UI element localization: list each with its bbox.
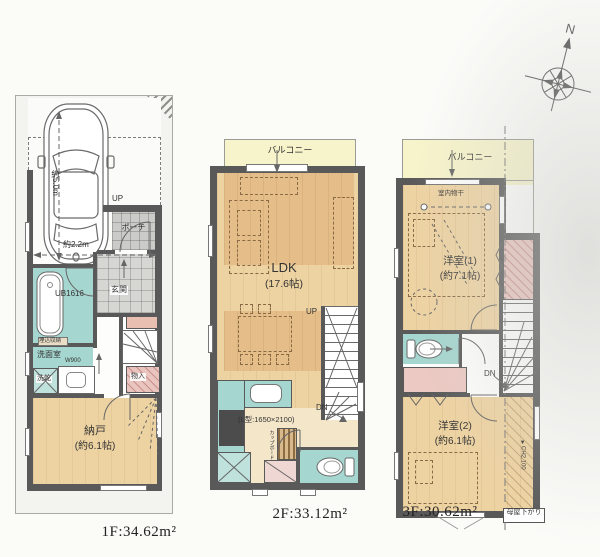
window: [208, 325, 213, 353]
bath-label: UB1616: [55, 290, 84, 299]
room1-label: 洋室(1): [420, 256, 500, 268]
bathtub-icon: [36, 271, 64, 337]
window: [208, 225, 213, 257]
vent-stub: [252, 489, 268, 496]
balcony-label-2f: バルコニー: [235, 146, 345, 156]
ldk-size-label: (17.6帖): [252, 279, 316, 291]
wall: [459, 334, 462, 367]
window: [25, 352, 30, 376]
entrance-genkan: [97, 254, 155, 313]
window: [25, 222, 30, 252]
washer-dryer-label: 洗乾: [36, 375, 52, 383]
shoe-cabinet: [126, 316, 158, 329]
ldk-label: LDK: [262, 261, 306, 275]
window: [425, 179, 480, 185]
w900-label: W900: [65, 358, 81, 365]
room2-size-label: (約6.1帖): [415, 436, 495, 447]
cabinet-outline: [240, 177, 298, 195]
walk-in-closet-3f: [503, 237, 534, 300]
compass-icon: N: [516, 12, 600, 124]
floor3-caption: 3F:30.62m²: [370, 504, 510, 521]
toilet-icon-3f: [406, 337, 448, 361]
wall: [103, 205, 162, 212]
porch-label: ポーチ: [112, 224, 155, 233]
stairs-3f: [503, 303, 533, 393]
floor-plan-sheet: UP ポーチ 玄関 UB1616 埋込収納 洗面室 W900 洗乾 物入 納戸 …: [0, 0, 600, 557]
storage-room-label: 納戸: [55, 425, 135, 437]
wall: [396, 330, 502, 334]
window: [357, 382, 364, 412]
refrigerator-space: [217, 452, 251, 483]
dining-chair: [276, 354, 289, 365]
window: [25, 428, 30, 456]
window: [394, 452, 399, 480]
bed-pillow-room2: [415, 460, 433, 484]
up-label-2f: UP: [306, 308, 317, 317]
cupboard: [277, 428, 297, 460]
vent-stub: [300, 489, 316, 496]
dining-chair: [258, 354, 271, 365]
window: [394, 248, 399, 278]
kitchen-sink: [250, 384, 282, 403]
cupboard-label: カップボード: [268, 430, 274, 460]
wall: [533, 233, 540, 518]
floor2-caption: 2F:33.12m²: [230, 506, 390, 523]
pantry-box: [264, 460, 297, 483]
kitchen-spec-label: (L型:1650×2100): [238, 416, 295, 424]
car-width-label: 約2.2m: [63, 241, 89, 250]
vanity-basin: [66, 372, 86, 388]
sofa-cushion: [237, 210, 261, 236]
window: [100, 485, 147, 491]
wall: [210, 483, 365, 490]
window: [534, 406, 540, 440]
up-label-1f: UP: [112, 195, 123, 204]
ceiling-height-label: ▼CH2,100: [519, 440, 526, 470]
window: [246, 164, 308, 172]
compass-north-label: N: [564, 20, 577, 37]
room2-label: 洋室(2): [415, 421, 495, 433]
closet-3f: [403, 367, 467, 393]
dn-label-2f: DN: [316, 404, 328, 413]
car-length-label: 約5.0m: [50, 170, 59, 196]
bed-pillow-room1: [413, 219, 435, 247]
stairs-1f: [122, 330, 158, 364]
toilet-icon-2f: [312, 455, 356, 479]
window: [499, 196, 505, 224]
stairs-2f: [325, 306, 358, 420]
wall: [396, 393, 470, 397]
room1-size-label: (約7.1帖): [420, 271, 500, 282]
window: [156, 412, 162, 438]
recessed-storage-label: 埋込収納: [39, 338, 61, 344]
dining-chair: [258, 304, 271, 314]
dn-label-3f: DN: [484, 370, 496, 379]
wall: [358, 166, 365, 490]
tv-board-outline: [333, 197, 354, 269]
wall: [499, 393, 540, 397]
balcony-label-3f: バルコニー: [410, 153, 530, 163]
indoor-drying-label: 室内物干: [438, 190, 464, 197]
sofa-cushion: [237, 240, 261, 266]
dining-chair: [240, 354, 253, 365]
washroom-label: 洗面室: [37, 351, 61, 360]
dining-table-outline: [238, 316, 292, 352]
entrance-label: 玄関: [110, 286, 128, 295]
storage-room-size-label: (約6.1帖): [50, 441, 140, 452]
dining-chair: [240, 304, 253, 314]
closet-label-1f: 物入: [130, 373, 146, 381]
floor1-caption: 1F:34.62m²: [60, 524, 218, 541]
